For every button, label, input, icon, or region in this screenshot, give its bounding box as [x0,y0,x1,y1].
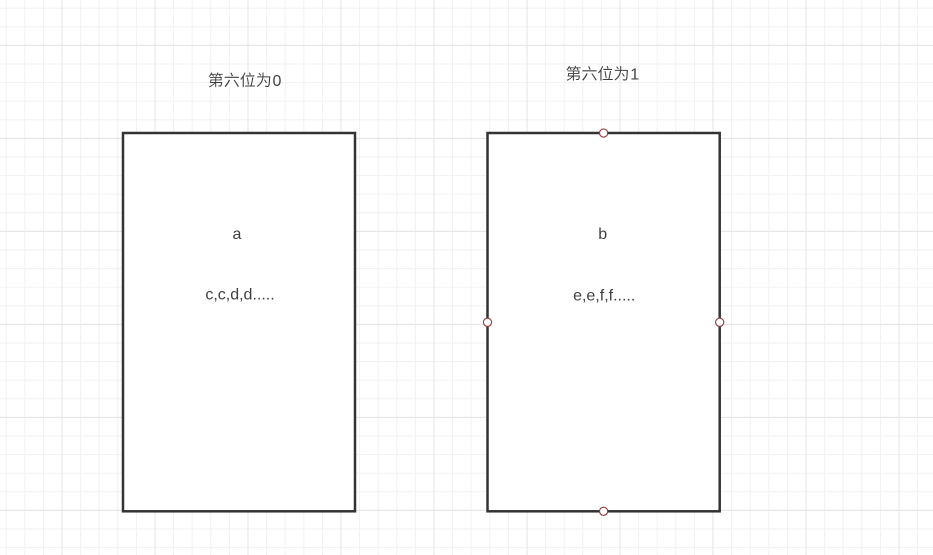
svg-text:c,c,d,d.....: c,c,d,d..... [205,287,274,304]
svg-text:0: 0 [273,73,282,90]
svg-text:b: b [598,226,607,243]
svg-text:e,e,f,f.....: e,e,f,f..... [573,287,635,304]
svg-text:a: a [233,226,242,243]
svg-text:1: 1 [630,66,639,83]
